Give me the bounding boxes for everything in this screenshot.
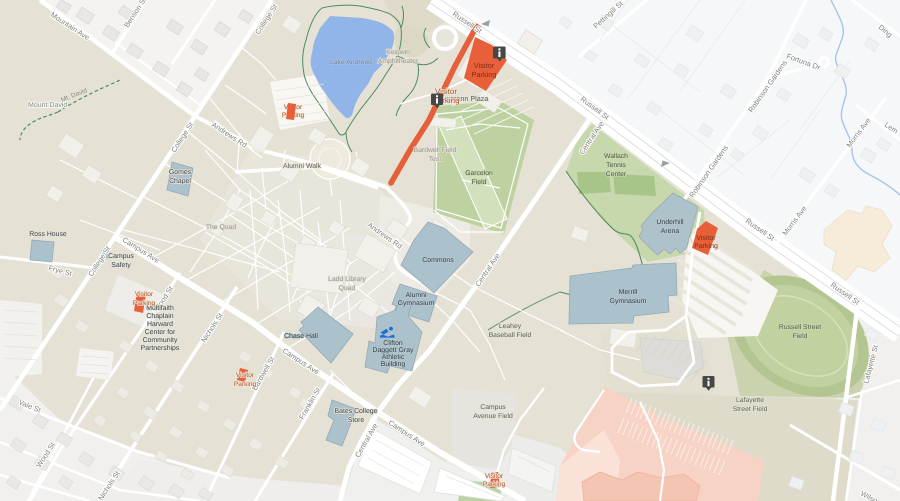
svg-text:Harward: Harward bbox=[147, 321, 173, 328]
svg-text:Alumni: Alumni bbox=[405, 292, 427, 299]
svg-text:Keigwin: Keigwin bbox=[386, 49, 410, 56]
svg-text:Underhill: Underhill bbox=[656, 219, 684, 226]
svg-text:Athletic: Athletic bbox=[382, 354, 405, 361]
svg-text:Field: Field bbox=[793, 333, 808, 340]
svg-text:Community: Community bbox=[143, 337, 178, 344]
svg-text:Commons: Commons bbox=[422, 257, 454, 264]
svg-text:Daggett Gray: Daggett Gray bbox=[373, 347, 415, 354]
svg-text:Store: Store bbox=[348, 417, 365, 424]
svg-text:Visitor: Visitor bbox=[135, 291, 154, 298]
svg-text:Wallach: Wallach bbox=[604, 153, 628, 160]
svg-text:Chase Hall: Chase Hall bbox=[284, 333, 318, 340]
svg-text:Visitor: Visitor bbox=[474, 61, 495, 70]
svg-text:Gomes: Gomes bbox=[169, 169, 192, 176]
svg-text:Russell Street: Russell Street bbox=[779, 324, 821, 331]
svg-text:Quad: Quad bbox=[339, 285, 356, 292]
svg-text:Ross House: Ross House bbox=[29, 231, 67, 238]
svg-text:Amphitheater: Amphitheater bbox=[378, 58, 419, 65]
svg-text:Gymnasium: Gymnasium bbox=[398, 300, 435, 307]
svg-text:Parking: Parking bbox=[133, 300, 156, 307]
svg-text:Avenue Field: Avenue Field bbox=[473, 413, 513, 420]
svg-text:Alumni Walk: Alumni Walk bbox=[283, 163, 322, 170]
svg-text:Campus: Campus bbox=[480, 404, 506, 411]
svg-text:Baseball Field: Baseball Field bbox=[489, 332, 532, 339]
svg-text:Chaplain: Chaplain bbox=[146, 313, 173, 320]
svg-text:Leahey: Leahey bbox=[499, 323, 522, 330]
svg-text:Building: Building bbox=[381, 361, 406, 368]
svg-text:Parking: Parking bbox=[694, 242, 718, 250]
svg-text:Gymnasium: Gymnasium bbox=[610, 298, 647, 305]
svg-text:Safety: Safety bbox=[111, 262, 131, 269]
svg-text:Parking: Parking bbox=[234, 381, 257, 388]
svg-text:Field: Field bbox=[472, 179, 487, 186]
svg-text:Center: Center bbox=[606, 171, 627, 178]
svg-text:Tennis: Tennis bbox=[606, 162, 626, 169]
svg-text:Clifton: Clifton bbox=[383, 340, 403, 347]
svg-text:Visitor: Visitor bbox=[485, 473, 504, 480]
svg-text:Arena: Arena bbox=[661, 228, 680, 235]
svg-text:Parking: Parking bbox=[483, 481, 506, 488]
svg-text:Chapel: Chapel bbox=[169, 178, 191, 185]
svg-text:The Quad: The Quad bbox=[206, 224, 236, 231]
svg-text:Garcelon: Garcelon bbox=[465, 170, 493, 177]
svg-text:Campus: Campus bbox=[108, 253, 134, 260]
svg-text:Partnerships: Partnerships bbox=[141, 345, 180, 352]
svg-text:Street Field: Street Field bbox=[733, 406, 768, 413]
svg-text:Center for: Center for bbox=[145, 329, 176, 336]
svg-text:Test: Test bbox=[429, 156, 442, 163]
svg-text:Parking: Parking bbox=[471, 70, 496, 79]
svg-text:Merrill: Merrill bbox=[619, 289, 638, 296]
svg-text:Visitor: Visitor bbox=[236, 372, 255, 379]
svg-text:Bardwell Field: Bardwell Field bbox=[414, 147, 457, 154]
svg-text:Lafayette: Lafayette bbox=[736, 397, 764, 404]
svg-text:Lake Andrews: Lake Andrews bbox=[330, 59, 373, 66]
svg-text:Bates College: Bates College bbox=[335, 408, 378, 415]
svg-text:Ladd Library: Ladd Library bbox=[328, 276, 366, 283]
svg-text:Visitor: Visitor bbox=[696, 234, 716, 242]
